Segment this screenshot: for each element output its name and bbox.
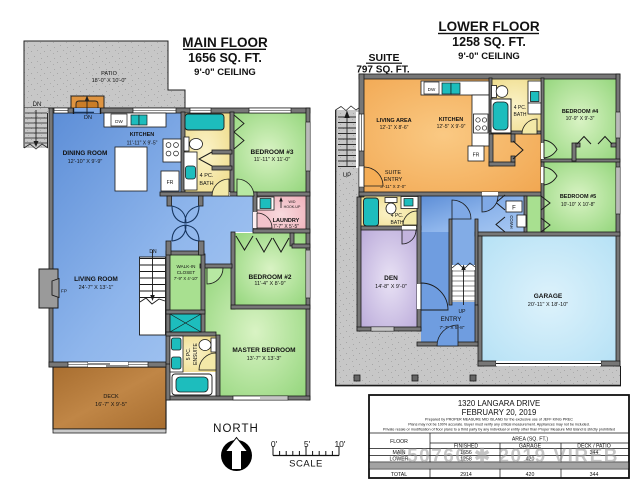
svg-text:ENTRY: ENTRY — [441, 316, 462, 323]
svg-text:FR: FR — [473, 153, 480, 159]
svg-text:10'-9" X 9'-3": 10'-9" X 9'-3" — [566, 116, 595, 122]
svg-text:11'-11" X 11'-0": 11'-11" X 11'-0" — [254, 157, 291, 163]
svg-text:1258 SQ. FT.: 1258 SQ. FT. — [452, 35, 526, 49]
svg-text:5 PC.: 5 PC. — [186, 348, 192, 361]
svg-text:10': 10' — [334, 439, 345, 449]
svg-text:KITCHEN: KITCHEN — [439, 117, 463, 123]
svg-text:12'-5" X 9'-9": 12'-5" X 9'-9" — [437, 124, 466, 130]
svg-text:F: F — [512, 206, 516, 212]
svg-text:BEDROOM #4: BEDROOM #4 — [562, 109, 599, 115]
svg-text:DN: DN — [84, 115, 92, 121]
svg-text:16'-7" X 9'-5": 16'-7" X 9'-5" — [95, 402, 127, 408]
svg-text:SUITE: SUITE — [385, 170, 402, 176]
svg-text:11'-11" X 9'-5": 11'-11" X 9'-5" — [127, 141, 158, 147]
svg-text:3'-11" X 3'-0": 3'-11" X 3'-0" — [380, 184, 406, 189]
svg-text:PATIO: PATIO — [101, 71, 117, 77]
svg-text:12'-10" X 9'-9": 12'-10" X 9'-9" — [68, 159, 103, 165]
svg-text:KITCHEN: KITCHEN — [130, 132, 154, 138]
svg-text:420: 420 — [526, 472, 535, 478]
svg-text:NORTH: NORTH — [213, 423, 259, 435]
svg-text:MAIN FLOOR: MAIN FLOOR — [182, 35, 268, 50]
svg-text:14'-8" X 9'-0": 14'-8" X 9'-0" — [375, 284, 407, 290]
svg-text:DN: DN — [149, 249, 157, 255]
svg-text:9'-0" CEILING: 9'-0" CEILING — [458, 51, 520, 62]
svg-text:DW: DW — [115, 119, 123, 124]
svg-text:DEN: DEN — [384, 275, 398, 282]
svg-text:1320 LANGARA DRIVE: 1320 LANGARA DRIVE — [458, 399, 540, 408]
svg-text:MASTER BEDROOM: MASTER BEDROOM — [232, 347, 295, 354]
svg-text:LOWER FLOOR: LOWER FLOOR — [438, 19, 539, 34]
svg-text:5': 5' — [304, 439, 311, 449]
svg-text:10'-10" X 10'-8": 10'-10" X 10'-8" — [561, 202, 596, 208]
svg-text:18'-0" X 10'-0": 18'-0" X 10'-0" — [92, 78, 127, 84]
svg-text:2914: 2914 — [460, 472, 472, 478]
svg-text:11'-4" X 8'-9": 11'-4" X 8'-9" — [254, 281, 285, 287]
svg-text:ENSUITE: ENSUITE — [193, 343, 199, 365]
svg-text:HOOK-UP: HOOK-UP — [284, 205, 301, 209]
svg-text:1656 SQ. FT.: 1656 SQ. FT. — [188, 51, 262, 65]
svg-text:BATH: BATH — [391, 220, 404, 226]
svg-text:UP: UP — [459, 309, 467, 315]
svg-text:BEDROOM #3: BEDROOM #3 — [251, 149, 294, 156]
svg-text:9'-0" CEILING: 9'-0" CEILING — [194, 67, 256, 78]
svg-text:4 PC.: 4 PC. — [514, 105, 527, 111]
svg-text:20'-11" X 18'-10": 20'-11" X 18'-10" — [528, 302, 569, 308]
svg-text:SUITE: SUITE — [369, 52, 400, 64]
svg-text:FP: FP — [61, 289, 67, 295]
svg-text:W/D: W/D — [289, 200, 296, 204]
svg-text:TOTAL: TOTAL — [391, 472, 407, 478]
svg-text:LIVING AREA: LIVING AREA — [376, 118, 411, 124]
svg-text:WALK-IN: WALK-IN — [177, 264, 196, 269]
svg-text:DINING ROOM: DINING ROOM — [63, 150, 108, 157]
svg-text:13'-7" X 13'-3": 13'-7" X 13'-3" — [247, 356, 282, 362]
svg-text:FLOOR: FLOOR — [390, 439, 408, 445]
svg-text:7'-9" X 4'-10": 7'-9" X 4'-10" — [174, 276, 199, 281]
svg-text:BEDROOM #2: BEDROOM #2 — [249, 274, 292, 281]
svg-text:ENTRY: ENTRY — [384, 177, 403, 183]
svg-text:LIVING ROOM: LIVING ROOM — [74, 276, 118, 283]
svg-text:0': 0' — [271, 439, 278, 449]
svg-text:24'-7" X 13'-1": 24'-7" X 13'-1" — [79, 285, 114, 291]
svg-text:4 PC.: 4 PC. — [200, 173, 214, 179]
svg-text:GARAGE: GARAGE — [534, 293, 563, 300]
svg-text:Private resale or modification: Private resale or modification of floor … — [383, 428, 615, 432]
svg-text:FEBRUARY 20, 2019: FEBRUARY 20, 2019 — [462, 408, 537, 417]
svg-text:450760 ✱ 2019 VIREB: 450760 ✱ 2019 VIREB — [395, 446, 619, 467]
svg-text:DW: DW — [428, 87, 436, 92]
svg-text:12'-1" X 8'-6": 12'-1" X 8'-6" — [380, 125, 409, 131]
svg-text:SCALE: SCALE — [289, 459, 323, 470]
svg-text:HWCO: HWCO — [509, 215, 514, 229]
svg-text:7'-7" X 5'-8": 7'-7" X 5'-8" — [440, 325, 465, 331]
svg-text:AREA (SQ. FT.): AREA (SQ. FT.) — [512, 437, 549, 443]
svg-text:BATH: BATH — [514, 112, 527, 118]
svg-text:Prepared by PROPER MEASURE MID: Prepared by PROPER MEASURE MID ISLAND fo… — [425, 418, 573, 422]
svg-text:DECK: DECK — [103, 394, 119, 400]
svg-text:DN: DN — [33, 102, 42, 108]
svg-text:FR: FR — [167, 180, 174, 186]
svg-text:CLOSET: CLOSET — [177, 270, 196, 275]
svg-text:BEDROOM #5: BEDROOM #5 — [560, 194, 596, 200]
svg-text:Plans may not be 100% accurate: Plans may not be 100% accurate. Buyer mu… — [408, 423, 590, 427]
svg-text:UP: UP — [343, 173, 351, 179]
svg-text:7'-7" X 5'-5": 7'-7" X 5'-5" — [273, 224, 299, 230]
svg-text:BATH: BATH — [199, 181, 213, 187]
svg-text:344: 344 — [590, 472, 599, 478]
